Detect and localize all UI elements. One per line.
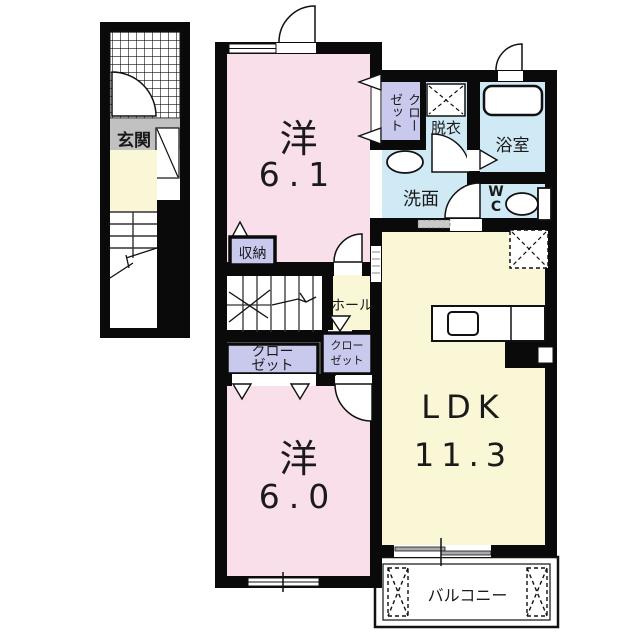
ldk-floor xyxy=(382,228,545,545)
kitchen-sink xyxy=(448,312,478,335)
room-yo61-floor xyxy=(227,54,370,264)
closet61-floor xyxy=(382,82,420,140)
yo61-window xyxy=(229,44,276,53)
balcony-hatch-box-right xyxy=(527,568,547,616)
bath-outer-door xyxy=(496,44,523,81)
refrigerator-box xyxy=(510,230,548,268)
hall-ldk-opening xyxy=(371,246,381,282)
unit-entrance-door xyxy=(276,6,316,53)
balcony xyxy=(375,557,558,627)
entrance-building xyxy=(100,22,190,338)
floor-plan: 玄関 洋 6.1 クローゼット 脱衣 浴室 洗面 WC ホール 収納 クローゼッ… xyxy=(0,0,640,640)
bathtub xyxy=(484,86,542,115)
wash-basin xyxy=(387,151,423,173)
washer-box xyxy=(427,84,465,116)
closet60-box xyxy=(227,344,318,374)
landing-floor xyxy=(110,150,157,212)
wall-niche xyxy=(538,347,553,363)
floor-plan-graphics xyxy=(0,0,640,640)
hall-closet-box xyxy=(322,333,372,374)
kitchen-counter xyxy=(432,306,545,341)
balcony-hatch-box-left xyxy=(388,568,408,616)
